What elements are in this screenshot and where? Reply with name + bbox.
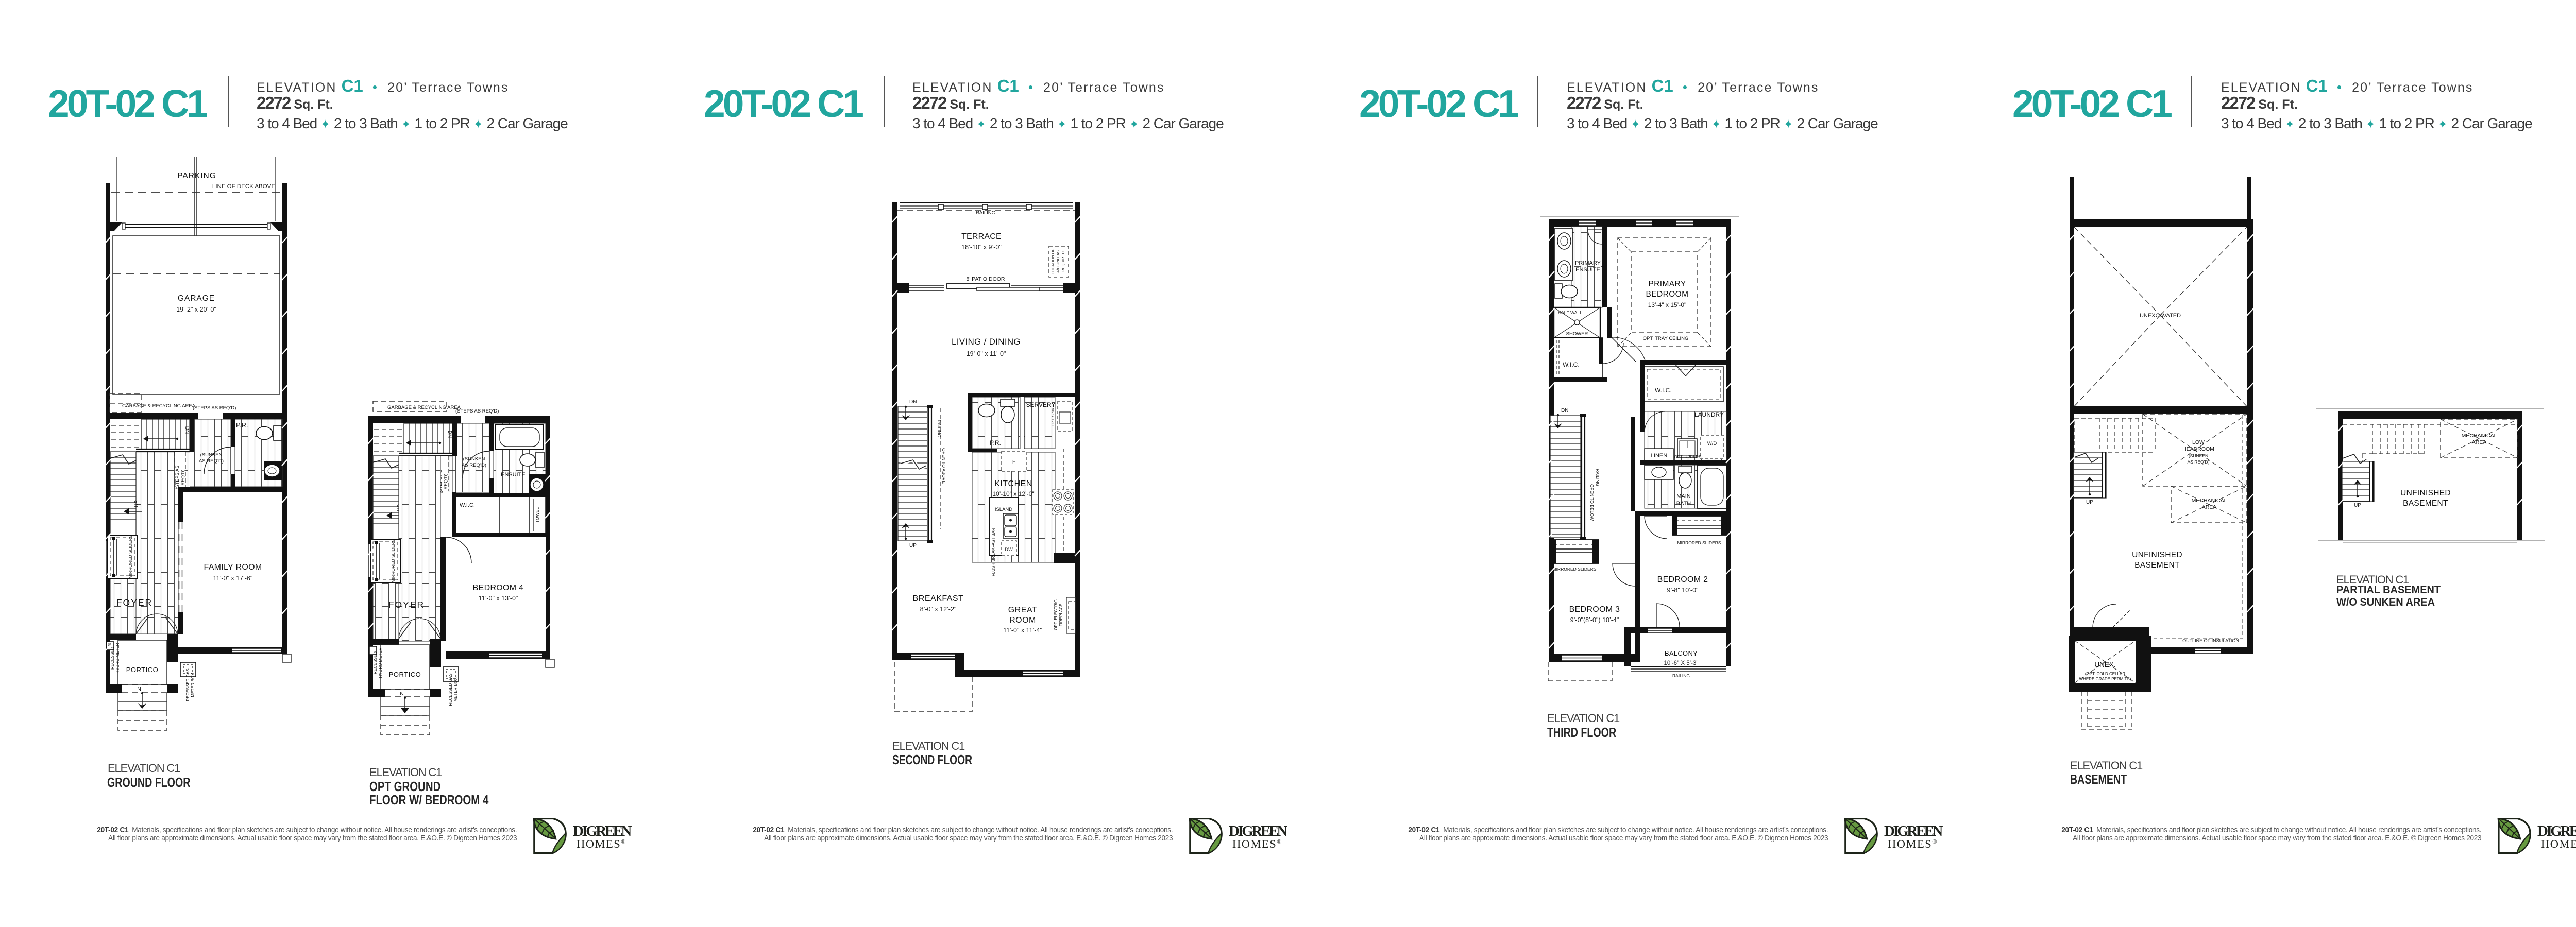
svg-text:METER BOX: METER BOX xyxy=(191,673,195,697)
svg-text:UNFINISHED: UNFINISHED xyxy=(2132,551,2182,559)
svg-text:11’-0" x 13’-0": 11’-0" x 13’-0" xyxy=(479,595,518,602)
svg-text:BASEMENT: BASEMENT xyxy=(2134,561,2180,570)
svg-text:DW: DW xyxy=(1005,547,1013,553)
svg-text:19’-0" x 11’-0": 19’-0" x 11’-0" xyxy=(967,350,1006,357)
svg-text:SHOWER: SHOWER xyxy=(1566,331,1588,337)
svg-text:P.R.: P.R. xyxy=(236,421,248,429)
svg-text:10’-6" X 5’-3": 10’-6" X 5’-3" xyxy=(1664,660,1699,666)
svg-text:TERRACE: TERRACE xyxy=(961,232,1002,241)
svg-text:W.I.C.: W.I.C. xyxy=(460,502,475,508)
svg-text:UP: UP xyxy=(134,500,140,507)
svg-text:HEADROOM: HEADROOM xyxy=(2182,446,2214,452)
svg-text:OPT. SINK: OPT. SINK xyxy=(1050,408,1055,426)
svg-text:UNEX.: UNEX. xyxy=(2094,661,2115,668)
svg-text:DN: DN xyxy=(447,431,452,438)
svg-text:P.R.: P.R. xyxy=(990,439,1001,447)
svg-text:PORTICO: PORTICO xyxy=(126,666,159,674)
svg-text:N: N xyxy=(137,686,141,692)
svg-text:FIREPLACE: FIREPLACE xyxy=(1059,604,1063,626)
svg-text:BASEMENT: BASEMENT xyxy=(2403,499,2448,508)
svg-text:LINEN: LINEN xyxy=(1651,453,1667,459)
svg-text:PRIMARY: PRIMARY xyxy=(1648,280,1686,288)
svg-text:(STEPS AS: (STEPS AS xyxy=(175,466,180,490)
svg-text:RECESSED GAS: RECESSED GAS xyxy=(185,668,190,701)
svg-text:9’-0"(8’-0") 10’-4": 9’-0"(8’-0") 10’-4" xyxy=(1570,616,1619,624)
svg-text:FLUSH BREAKFAST BAR: FLUSH BREAKFAST BAR xyxy=(991,528,996,576)
svg-text:N: N xyxy=(400,691,404,697)
svg-text:RAILING: RAILING xyxy=(1672,673,1690,678)
svg-text:MAIN: MAIN xyxy=(1676,493,1691,500)
svg-text:10’-10" x 12’-0": 10’-10" x 12’-0" xyxy=(992,490,1034,497)
svg-text:F: F xyxy=(1012,459,1015,465)
svg-text:REQ’D): REQ’D) xyxy=(443,473,448,489)
svg-text:W/D: W/D xyxy=(1707,441,1717,447)
svg-text:ROOM: ROOM xyxy=(1009,616,1036,625)
svg-text:LOW: LOW xyxy=(2192,439,2205,445)
svg-text:DN: DN xyxy=(184,426,190,434)
svg-text:RECESSED GAS: RECESSED GAS xyxy=(448,673,453,706)
svg-text:FAMILY ROOM: FAMILY ROOM xyxy=(204,563,262,572)
svg-text:UNEXCAVATED: UNEXCAVATED xyxy=(2140,313,2181,319)
svg-text:OPT. ELECTRIC: OPT. ELECTRIC xyxy=(1054,599,1058,630)
svg-text:(STEPS AS REQ’D): (STEPS AS REQ’D) xyxy=(455,408,499,414)
svg-text:BALCONY: BALCONY xyxy=(1665,649,1698,657)
svg-text:MIRRORED SLIDERS: MIRRORED SLIDERS xyxy=(1552,566,1596,572)
svg-text:AREA: AREA xyxy=(2472,439,2487,445)
svg-text:(SUNKEN: (SUNKEN xyxy=(2189,453,2208,458)
svg-text:BEDROOM 4: BEDROOM 4 xyxy=(473,583,524,592)
svg-text:LOCATION OF: LOCATION OF xyxy=(1050,248,1055,274)
svg-text:11’-0" x 11’-4": 11’-0" x 11’-4" xyxy=(1003,627,1042,634)
svg-text:LAUNDRY: LAUNDRY xyxy=(1694,411,1724,418)
svg-text:FOYER: FOYER xyxy=(388,599,425,610)
svg-text:HYDRO METER: HYDRO METER xyxy=(378,647,383,678)
svg-text:METER BOX: METER BOX xyxy=(453,677,458,702)
svg-text:BATH: BATH xyxy=(1676,501,1691,507)
svg-text:MECHANICAL: MECHANICAL xyxy=(2192,497,2227,504)
svg-text:RAILING: RAILING xyxy=(1595,469,1600,486)
svg-text:8’-0" x 12’-2": 8’-0" x 12’-2" xyxy=(920,606,957,613)
svg-text:DN: DN xyxy=(909,399,917,405)
svg-text:W.I.C.: W.I.C. xyxy=(1563,361,1580,368)
svg-text:LIVING / DINING: LIVING / DINING xyxy=(952,337,1021,347)
svg-text:REQUIRED: REQUIRED xyxy=(1061,251,1065,272)
svg-text:(STEPS AS REQ’D): (STEPS AS REQ’D) xyxy=(193,405,236,411)
svg-text:HALF WALL: HALF WALL xyxy=(1558,310,1582,315)
svg-text:RECESSED: RECESSED xyxy=(110,647,115,669)
svg-text:9’-8" 10’-0": 9’-8" 10’-0" xyxy=(1667,587,1699,594)
svg-text:PARKING: PARKING xyxy=(177,171,216,180)
svg-text:UP: UP xyxy=(2354,503,2361,508)
svg-text:MECHANICAL: MECHANICAL xyxy=(2462,433,2497,439)
svg-text:ENSUITE: ENSUITE xyxy=(501,472,526,478)
svg-text:UP: UP xyxy=(2086,500,2093,505)
svg-text:MIRRORED SLIDERS: MIRRORED SLIDERS xyxy=(128,535,133,578)
svg-text:UNFINISHED: UNFINISHED xyxy=(2400,489,2451,497)
svg-text:BREAKFAST: BREAKFAST xyxy=(913,594,964,603)
svg-text:OPT. TRAY CEILING: OPT. TRAY CEILING xyxy=(1643,336,1689,341)
svg-text:GARBAGE & RECYCLING AREA: GARBAGE & RECYCLING AREA xyxy=(122,403,196,409)
svg-text:(SUNKEN: (SUNKEN xyxy=(463,456,485,462)
svg-text:W.I.C.: W.I.C. xyxy=(1655,387,1672,394)
svg-text:ISLAND: ISLAND xyxy=(995,507,1012,512)
svg-text:BEDROOM 2: BEDROOM 2 xyxy=(1657,575,1708,584)
svg-text:FOYER: FOYER xyxy=(116,597,152,608)
svg-text:PORTICO: PORTICO xyxy=(389,671,421,678)
svg-text:AREA: AREA xyxy=(2202,504,2217,510)
svg-text:SERVERY: SERVERY xyxy=(1026,401,1056,408)
svg-text:OPEN TO ABOVE: OPEN TO ABOVE xyxy=(941,448,946,484)
svg-text:WHERE GRADE PERMITS): WHERE GRADE PERMITS) xyxy=(2079,677,2131,681)
svg-text:AS REQ’D): AS REQ’D) xyxy=(2188,459,2210,465)
svg-text:KITCHEN: KITCHEN xyxy=(994,479,1032,488)
svg-text:HYDRO METER: HYDRO METER xyxy=(115,643,120,673)
svg-text:MIRRORED SLIDERS: MIRRORED SLIDERS xyxy=(1677,540,1721,545)
svg-text:LINE OF DECK ABOVE: LINE OF DECK ABOVE xyxy=(212,184,275,190)
svg-text:BEDROOM 3: BEDROOM 3 xyxy=(1569,605,1620,614)
svg-text:OPEN TO BELOW: OPEN TO BELOW xyxy=(1589,484,1595,521)
svg-text:AS REQ’D): AS REQ’D) xyxy=(199,458,224,464)
svg-text:GREAT: GREAT xyxy=(1008,606,1037,614)
svg-text:UP: UP xyxy=(909,543,917,548)
svg-text:GARAGE: GARAGE xyxy=(178,294,215,303)
svg-text:TOWEL: TOWEL xyxy=(535,507,540,523)
svg-text:19’-2" x 20’-0": 19’-2" x 20’-0" xyxy=(176,306,216,313)
svg-text:ENSUITE: ENSUITE xyxy=(1575,267,1600,273)
svg-text:DN: DN xyxy=(1561,408,1568,414)
svg-text:GARBAGE & RECYCLING AREA: GARBAGE & RECYCLING AREA xyxy=(387,405,461,410)
svg-text:(OPT. COLD CELLAR: (OPT. COLD CELLAR xyxy=(2085,672,2125,676)
svg-text:11’-0" x 17’-6": 11’-0" x 17’-6" xyxy=(213,575,253,582)
svg-text:8’ PATIO DOOR: 8’ PATIO DOOR xyxy=(966,276,1005,282)
svg-text:18’-10" x 9’-0": 18’-10" x 9’-0" xyxy=(961,244,1002,251)
svg-text:OUTLINE OF INSULATION: OUTLINE OF INSULATION xyxy=(2182,638,2239,643)
svg-text:PRIMARY: PRIMARY xyxy=(1575,260,1601,266)
svg-text:BEDROOM: BEDROOM xyxy=(1646,290,1689,299)
svg-text:RECESSED: RECESSED xyxy=(373,651,378,674)
svg-text:MIRRORED SLIDERS: MIRRORED SLIDERS xyxy=(391,539,396,582)
svg-text:13’-4" x 15’-0": 13’-4" x 15’-0" xyxy=(1648,301,1687,308)
svg-text:A/C UNIT AS: A/C UNIT AS xyxy=(1056,250,1060,273)
svg-text:REQ’D): REQ’D) xyxy=(180,469,185,485)
svg-text:OPT. UPPERS: OPT. UPPERS xyxy=(1674,455,1702,459)
